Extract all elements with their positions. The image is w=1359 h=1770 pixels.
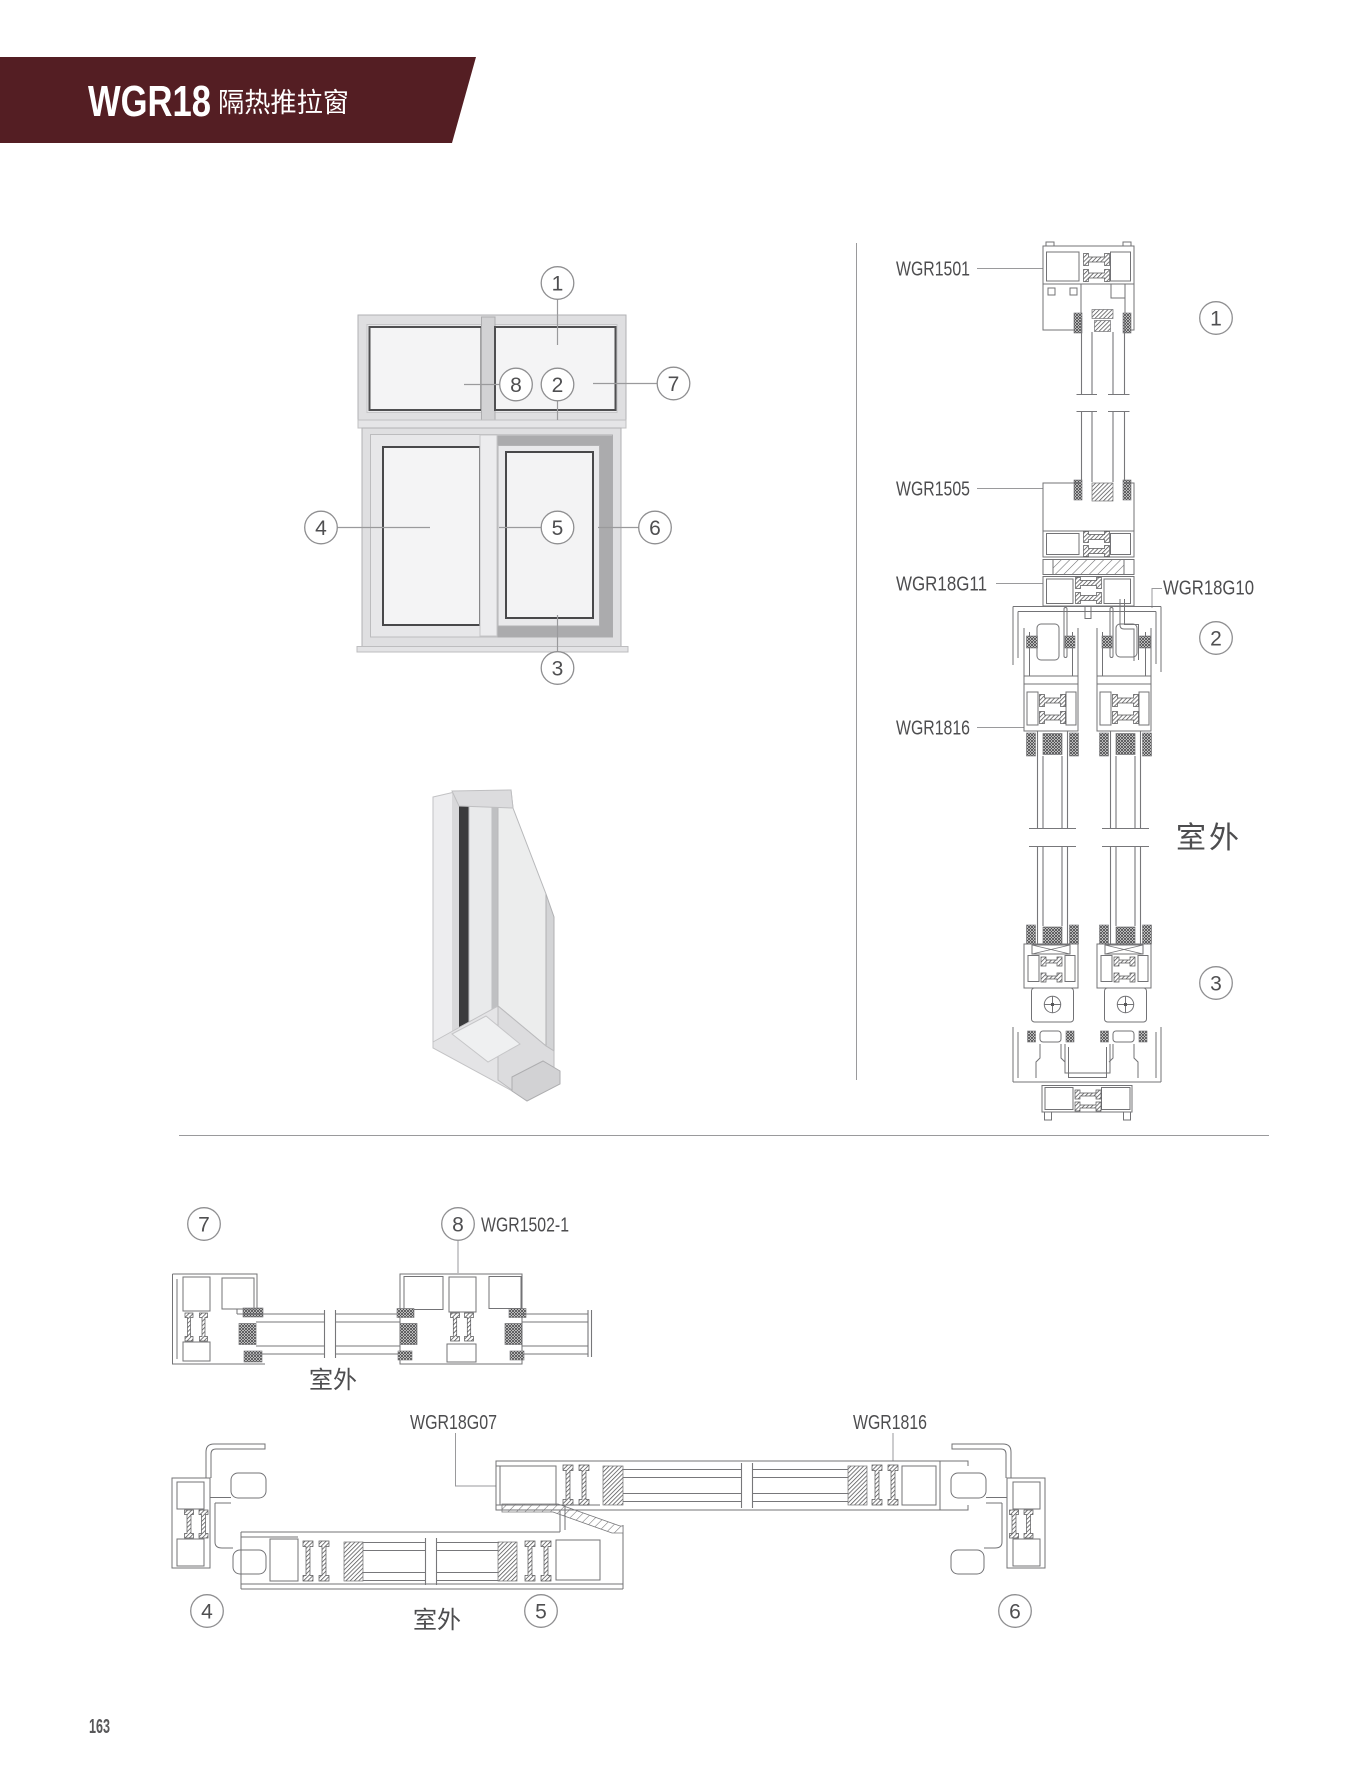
- svg-text:室外: 室外: [309, 1367, 357, 1394]
- svg-text:8: 8: [452, 1214, 464, 1237]
- svg-text:WGR1501: WGR1501: [896, 259, 970, 281]
- svg-text:WGR18G11: WGR18G11: [896, 574, 987, 596]
- svg-text:WGR1502-1: WGR1502-1: [481, 1215, 569, 1237]
- svg-text:6: 6: [1009, 1601, 1021, 1624]
- svg-text:室外: 室外: [413, 1607, 461, 1634]
- svg-text:WGR18G10: WGR18G10: [1163, 578, 1254, 600]
- svg-text:2: 2: [1210, 628, 1222, 651]
- svg-text:WGR1816: WGR1816: [853, 1412, 927, 1434]
- svg-text:4: 4: [315, 517, 327, 540]
- svg-text:163: 163: [89, 1716, 110, 1738]
- svg-text:7: 7: [198, 1214, 210, 1237]
- svg-text:7: 7: [668, 373, 680, 396]
- svg-text:5: 5: [552, 517, 564, 540]
- svg-text:WGR1816: WGR1816: [896, 718, 970, 740]
- svg-text:隔热推拉窗: 隔热推拉窗: [218, 88, 349, 118]
- svg-text:5: 5: [535, 1601, 547, 1624]
- svg-text:室外: 室外: [1176, 822, 1242, 855]
- svg-text:6: 6: [649, 517, 661, 540]
- svg-text:3: 3: [1210, 973, 1222, 996]
- svg-text:WGR18: WGR18: [88, 77, 211, 126]
- svg-text:3: 3: [552, 658, 564, 681]
- svg-text:WGR18G07: WGR18G07: [410, 1412, 497, 1434]
- svg-text:1: 1: [1210, 308, 1222, 331]
- svg-text:8: 8: [510, 374, 522, 397]
- svg-text:1: 1: [552, 273, 564, 296]
- svg-text:4: 4: [201, 1601, 213, 1624]
- svg-text:2: 2: [552, 374, 564, 397]
- svg-text:WGR1505: WGR1505: [896, 479, 970, 501]
